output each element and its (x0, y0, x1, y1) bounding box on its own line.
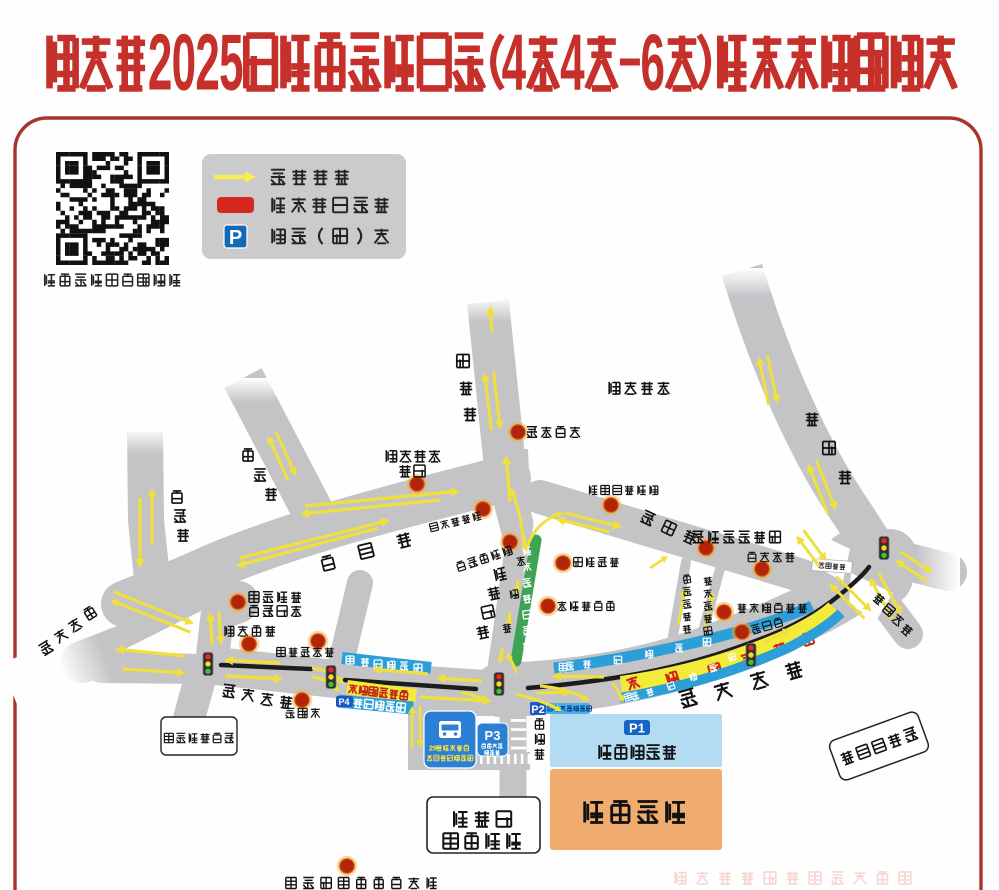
svg-text:2: 2 (195, 18, 219, 107)
svg-text:9: 9 (433, 744, 437, 753)
svg-text:2: 2 (148, 18, 172, 107)
svg-text:0: 0 (172, 18, 196, 107)
svg-text:6: 6 (640, 18, 664, 107)
svg-text:P3: P3 (485, 728, 501, 743)
svg-text:P1: P1 (629, 721, 645, 736)
svg-text:5: 5 (219, 18, 243, 107)
svg-text:4: 4 (502, 18, 527, 107)
svg-text:P4: P4 (338, 697, 349, 707)
svg-text:P: P (229, 227, 242, 249)
svg-text:P2: P2 (531, 704, 544, 716)
svg-text:4: 4 (560, 18, 585, 107)
